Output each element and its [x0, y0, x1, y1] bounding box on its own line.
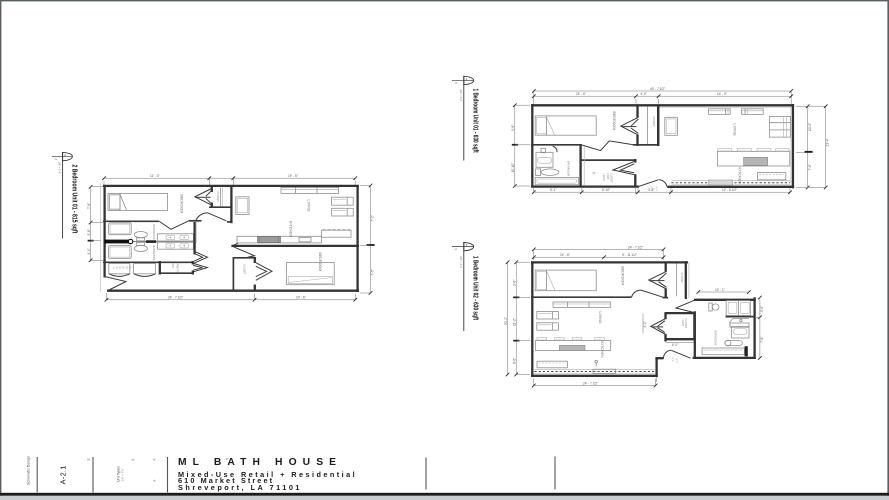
svg-text:BEDROOM: BEDROOM [180, 195, 184, 214]
svg-text:BEDROOM: BEDROOM [620, 267, 624, 286]
svg-text:W/D: W/D [171, 264, 174, 269]
svg-text:LIVING: LIVING [598, 312, 602, 324]
svg-text:14' - 8": 14' - 8" [560, 253, 570, 257]
svg-text:LINEN: LINEN [602, 174, 605, 181]
svg-text:Unit Types: Unit Types [117, 466, 121, 482]
svg-text:7'-6": 7'-6" [808, 164, 812, 170]
svg-text:ck: ck [153, 479, 156, 483]
svg-text:4'-1": 4'-1" [643, 321, 647, 327]
svg-text:5'-1": 5'-1" [550, 188, 556, 192]
svg-text:5'-3": 5'-3" [652, 186, 654, 191]
svg-text:KITCHEN: KITCHEN [600, 342, 604, 359]
svg-text:9'-6": 9'-6" [511, 125, 515, 131]
svg-text:6'-0": 6'-0" [672, 343, 678, 347]
svg-text:5'-10": 5'-10" [602, 188, 610, 192]
svg-text:ds: ds [132, 458, 135, 462]
svg-text:10' - 6": 10' - 6" [296, 296, 306, 300]
svg-text:4'-1": 4'-1" [87, 248, 91, 254]
svg-text:1/4" = 1'-0": 1/4" = 1'-0" [459, 256, 462, 268]
svg-text:KITCHEN: KITCHEN [738, 168, 742, 185]
svg-text:5'-0": 5'-0" [657, 186, 659, 191]
svg-text:KITCHEN: KITCHEN [289, 221, 293, 238]
svg-text:4'-0": 4'-0" [641, 92, 647, 96]
svg-text:LIVING: LIVING [733, 124, 737, 136]
svg-text:1 Bedroom Unit 02 - 630 sqft: 1 Bedroom Unit 02 - 630 sqft [471, 256, 479, 320]
svg-text:05: 05 [455, 249, 458, 251]
svg-text:BATHROOM: BATHROOM [714, 331, 718, 346]
svg-text:19' - 6": 19' - 6" [288, 174, 298, 178]
svg-text:40' - 7 1/2": 40' - 7 1/2" [650, 87, 665, 91]
svg-text:7'-6": 7'-6" [87, 203, 91, 209]
svg-text:dt: dt [153, 458, 155, 462]
svg-text:COAT: COAT [681, 320, 684, 327]
svg-text:1/4" = 1'-0": 1/4" = 1'-0" [58, 162, 61, 174]
svg-text:BATHROOM: BATHROOM [152, 246, 156, 261]
svg-text:CLOSET: CLOSET [680, 273, 684, 284]
svg-text:A-2.1: A-2.1 [59, 465, 68, 484]
svg-text:x: x [706, 351, 707, 353]
svg-text:Schematic Design: Schematic Design [27, 456, 31, 485]
svg-text:3'-6": 3'-6" [760, 306, 764, 312]
svg-text:3'-6": 3'-6" [87, 229, 91, 235]
svg-text:3'-0": 3'-0" [673, 357, 675, 362]
svg-text:LAUNDRY: LAUNDRY [113, 266, 136, 270]
svg-text:05: 05 [87, 458, 90, 462]
svg-text:05: 05 [455, 83, 458, 85]
svg-text:1/4" = 1'-0": 1/4" = 1'-0" [120, 468, 124, 481]
svg-text:CLOSET: CLOSET [243, 264, 247, 275]
svg-text:CLOSET: CLOSET [652, 116, 656, 127]
svg-text:7'-5": 7'-5" [371, 269, 375, 275]
svg-text:24' - 7 1/2": 24' - 7 1/2" [583, 381, 598, 385]
svg-text:10' - 1": 10' - 1" [715, 288, 725, 292]
svg-text:PANTRY: PANTRY [176, 264, 179, 274]
svg-text:7'-2": 7'-2" [371, 215, 375, 221]
svg-text:9'-6": 9'-6" [512, 280, 516, 286]
svg-text:11'-2": 11'-2" [512, 318, 516, 326]
svg-text:CLOSET: CLOSET [684, 319, 687, 329]
svg-text:1 Bedroom Unit 01 - 630 sqft: 1 Bedroom Unit 01 - 630 sqft [471, 89, 479, 153]
svg-text:BEDROOM: BEDROOM [612, 112, 616, 131]
svg-text:LIVING: LIVING [307, 200, 311, 212]
svg-text:BATHROOM: BATHROOM [152, 225, 156, 240]
svg-text:BEDROOM: BEDROOM [318, 253, 322, 272]
svg-text:14' - 0": 14' - 0" [717, 92, 727, 96]
svg-text:24' - 7 1/2": 24' - 7 1/2" [628, 245, 643, 249]
svg-text:COAT: COAT [606, 173, 609, 180]
svg-text:12' - 5 1/2": 12' - 5 1/2" [722, 188, 737, 192]
svg-text:9' - 11 1/2": 9' - 11 1/2" [622, 253, 637, 257]
svg-text:24' - 7 1/2": 24' - 7 1/2" [168, 296, 183, 300]
svg-text:CLOSET: CLOSET [609, 173, 612, 183]
svg-text:CLOSET: CLOSET [216, 192, 220, 203]
svg-text:05: 05 [55, 159, 58, 161]
svg-text:10'-10": 10'-10" [511, 163, 515, 173]
svg-text:7'-6": 7'-6" [760, 337, 764, 343]
svg-text:30'-2": 30'-2" [504, 317, 508, 325]
svg-text:2 Bedroom Unit 01 - 815 sqft: 2 Bedroom Unit 01 - 815 sqft [70, 165, 78, 235]
svg-text:11' - 0": 11' - 0" [150, 174, 160, 178]
svg-text:8'-6": 8'-6" [512, 358, 516, 364]
svg-text:BATHROOM: BATHROOM [566, 161, 570, 176]
svg-text:5'-0": 5'-0" [676, 358, 678, 363]
svg-text:1/4" = 1'-0": 1/4" = 1'-0" [459, 89, 462, 101]
svg-text:21' - 6": 21' - 6" [576, 92, 586, 96]
svg-text:10'-0": 10'-0" [808, 123, 812, 131]
svg-text:21'-4": 21'-4" [826, 138, 830, 146]
